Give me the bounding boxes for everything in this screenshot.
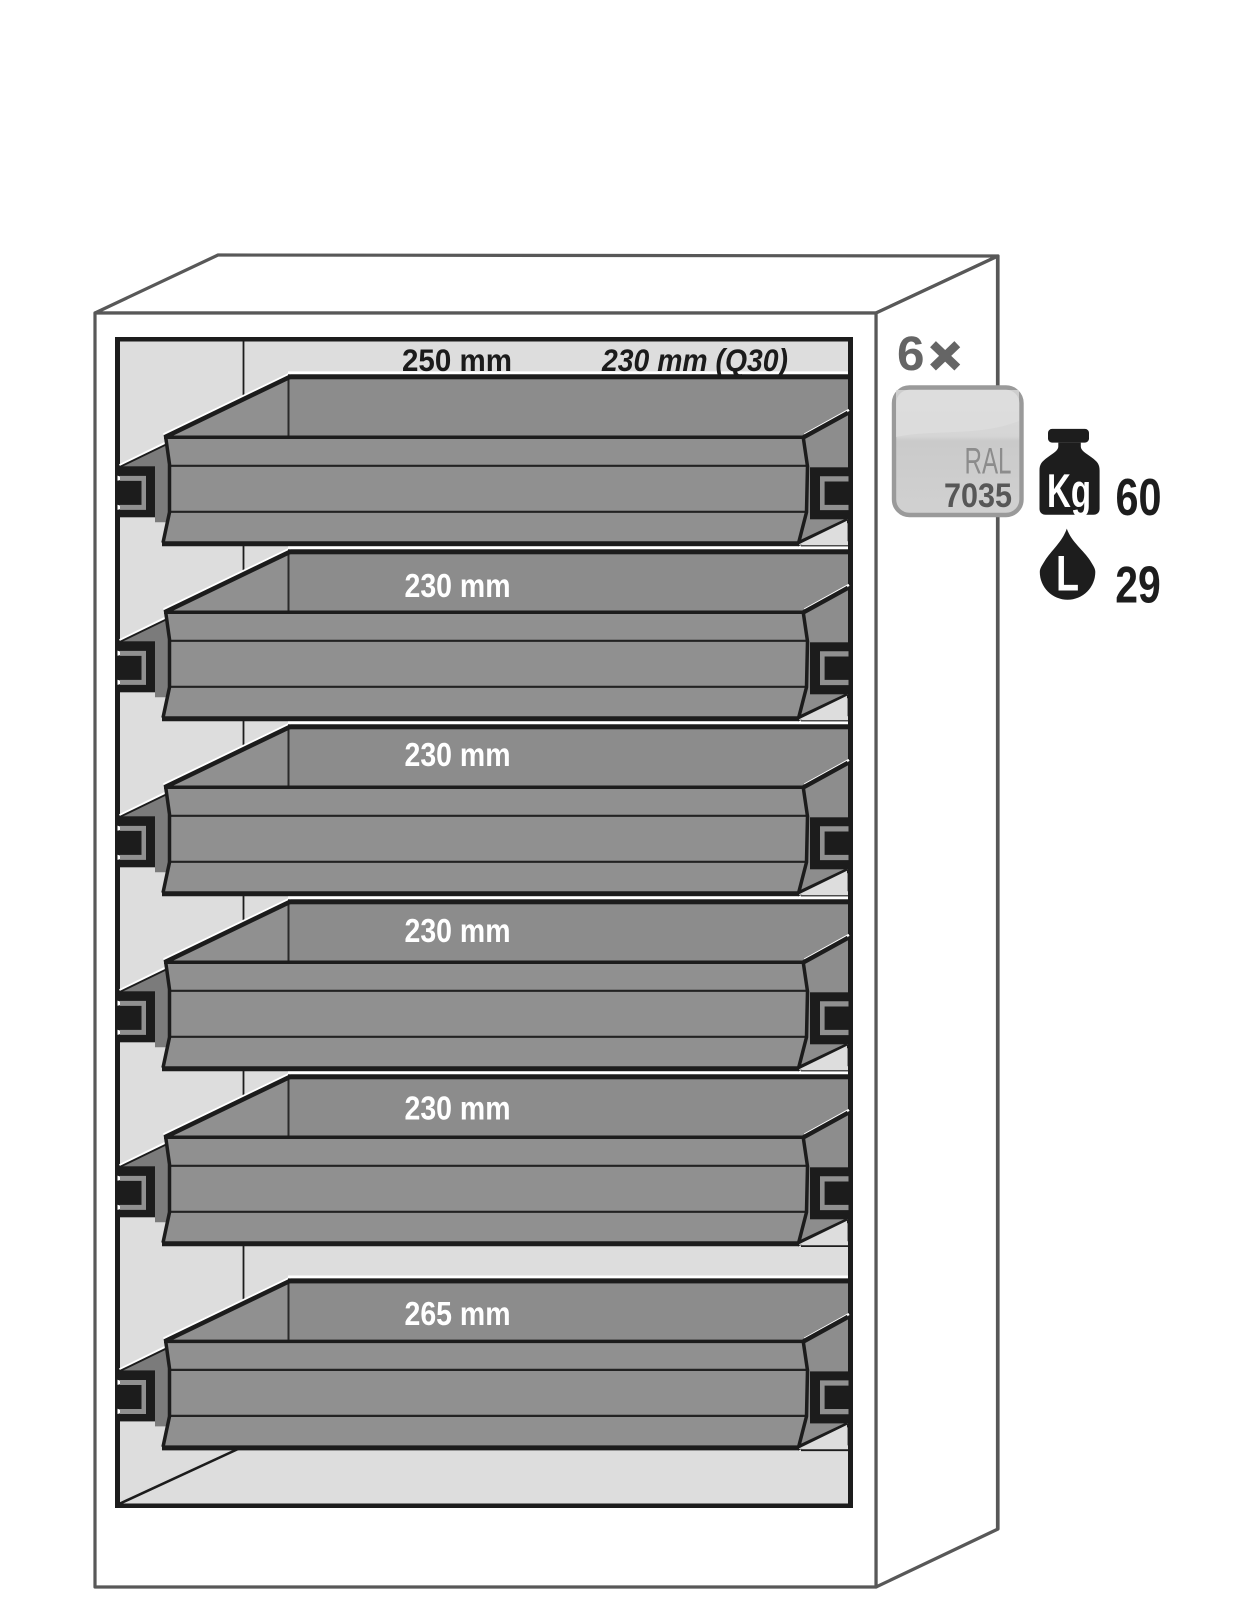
svg-text:230 mm: 230 mm <box>405 1090 511 1127</box>
svg-text:230 mm: 230 mm <box>405 736 511 773</box>
svg-text:250 mm: 250 mm <box>402 342 512 378</box>
svg-text:6: 6 <box>897 328 925 381</box>
svg-text:230 mm: 230 mm <box>405 567 511 604</box>
svg-text:265 mm: 265 mm <box>405 1295 511 1332</box>
svg-text:Kg: Kg <box>1047 465 1091 518</box>
svg-text:L: L <box>1056 546 1079 602</box>
svg-text:60: 60 <box>1116 469 1162 527</box>
svg-text:7035: 7035 <box>944 477 1012 515</box>
svg-text:29: 29 <box>1115 556 1161 614</box>
svg-text:RAL: RAL <box>965 441 1012 482</box>
svg-text:230 mm: 230 mm <box>405 912 511 949</box>
svg-text:230 mm (Q30): 230 mm (Q30) <box>601 342 788 378</box>
